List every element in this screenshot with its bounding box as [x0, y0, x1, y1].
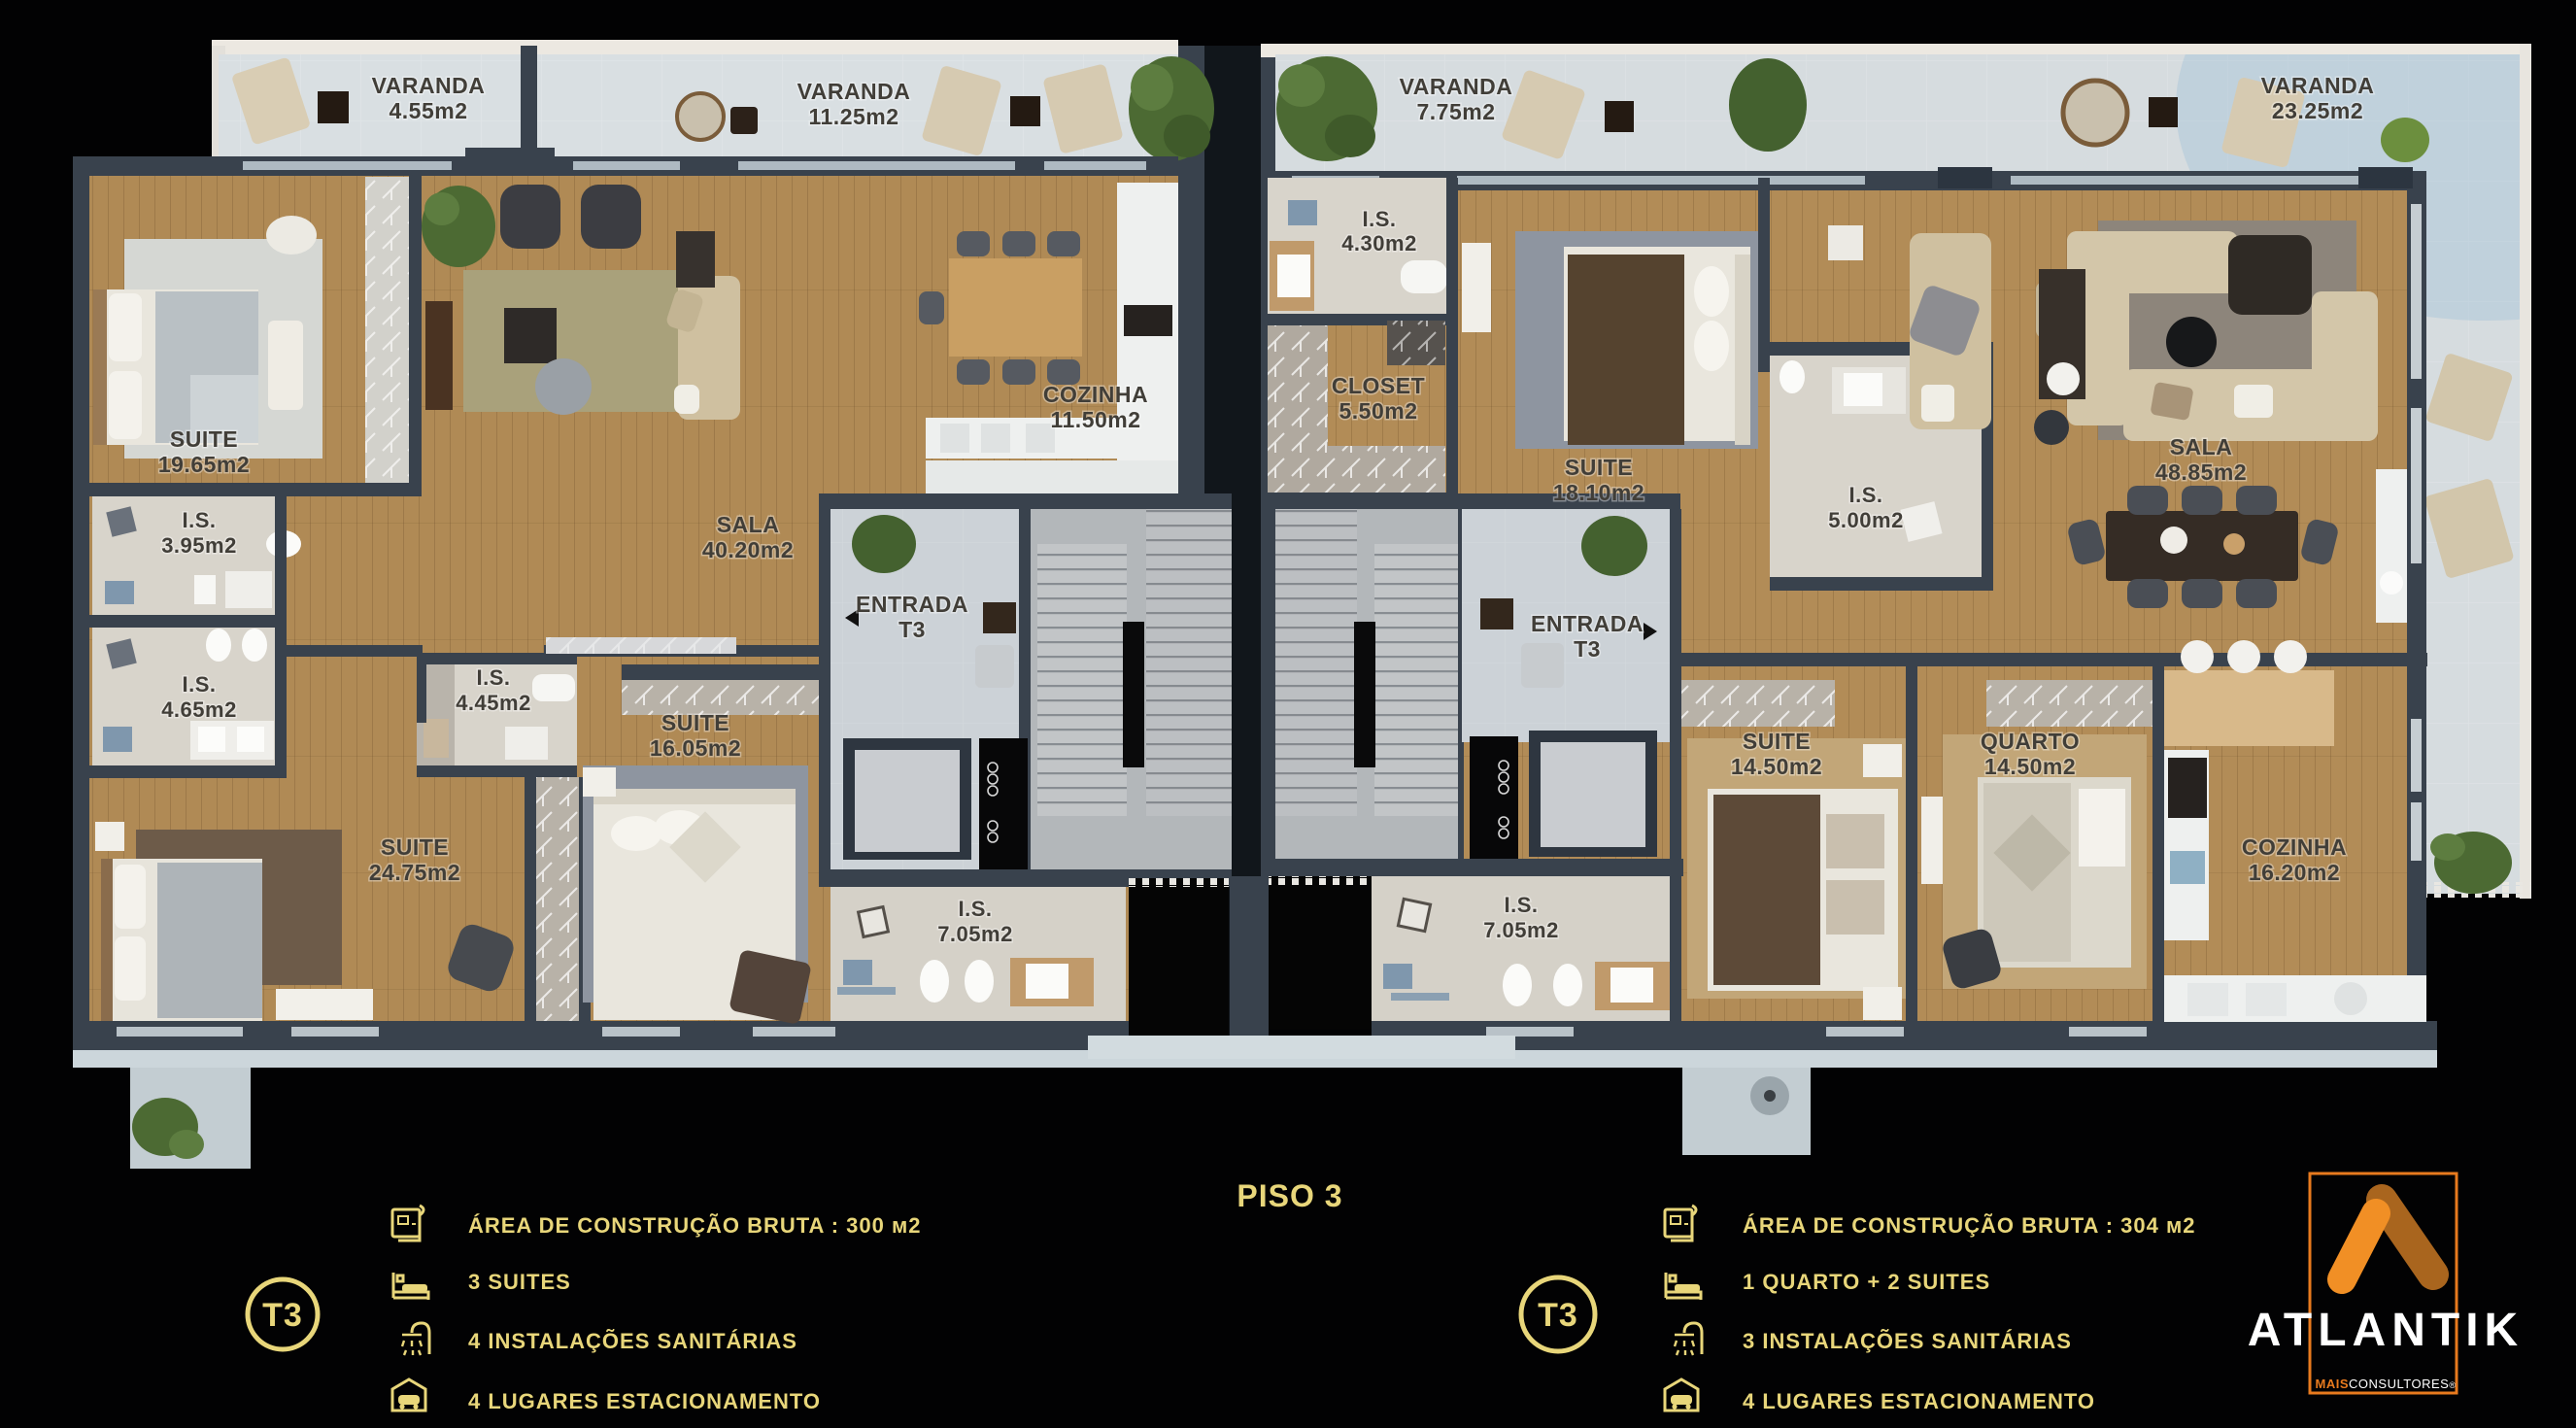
- svg-text:ÁREA DE CONSTRUÇÃO BRUTA : 30: ÁREA DE CONSTRUÇÃO BRUTA : 304 м2: [1743, 1213, 2196, 1238]
- svg-text:I.S.: I.S.: [1848, 483, 1882, 507]
- svg-text:11.50m2: 11.50m2: [1050, 407, 1140, 432]
- svg-text:I.S.: I.S.: [1362, 207, 1396, 231]
- svg-text:16.20m2: 16.20m2: [2249, 860, 2340, 885]
- svg-text:16.05m2: 16.05m2: [650, 735, 741, 761]
- svg-text:5.00m2: 5.00m2: [1828, 508, 1904, 532]
- svg-text:I.S.: I.S.: [182, 508, 216, 532]
- svg-text:ENTRADA: ENTRADA: [1531, 611, 1644, 636]
- svg-text:7.05m2: 7.05m2: [937, 922, 1013, 946]
- svg-text:23.25m2: 23.25m2: [2272, 98, 2363, 123]
- svg-text:4 LUGARES ESTACIONAMENTO: 4 LUGARES ESTACIONAMENTO: [468, 1389, 821, 1413]
- svg-text:14.50m2: 14.50m2: [1731, 754, 1822, 779]
- svg-text:7.75m2: 7.75m2: [1416, 99, 1495, 124]
- svg-text:3 INSTALAÇÕES SANITÁRIAS: 3 INSTALAÇÕES SANITÁRIAS: [1743, 1329, 2072, 1353]
- svg-text:ATLANTIK: ATLANTIK: [2248, 1305, 2524, 1356]
- svg-text:I.S.: I.S.: [476, 665, 510, 690]
- svg-text:SUITE: SUITE: [381, 834, 449, 860]
- svg-text:SALA: SALA: [717, 512, 780, 537]
- svg-text:T3: T3: [898, 617, 926, 642]
- svg-text:MAISCONSULTORES®: MAISCONSULTORES®: [2316, 1377, 2457, 1391]
- svg-text:4.30m2: 4.30m2: [1341, 231, 1417, 255]
- svg-text:CLOSET: CLOSET: [1332, 373, 1425, 398]
- svg-text:48.85m2: 48.85m2: [2155, 459, 2247, 485]
- svg-text:COZINHA: COZINHA: [1043, 382, 1148, 407]
- svg-text:T3: T3: [1538, 1297, 1578, 1334]
- svg-text:PISO 3: PISO 3: [1237, 1178, 1342, 1213]
- svg-text:7.05m2: 7.05m2: [1483, 918, 1559, 942]
- svg-text:I.S.: I.S.: [1504, 893, 1538, 917]
- svg-text:40.20m2: 40.20m2: [702, 537, 794, 562]
- svg-text:SUITE: SUITE: [170, 426, 238, 452]
- svg-text:14.50m2: 14.50m2: [1984, 754, 2076, 779]
- svg-text:I.S.: I.S.: [958, 897, 992, 921]
- svg-text:19.65m2: 19.65m2: [158, 452, 250, 477]
- svg-text:11.25m2: 11.25m2: [808, 104, 898, 129]
- svg-text:VARANDA: VARANDA: [2261, 73, 2375, 98]
- svg-text:QUARTO: QUARTO: [1981, 729, 2080, 754]
- svg-text:3.95m2: 3.95m2: [161, 533, 237, 558]
- svg-text:ENTRADA: ENTRADA: [856, 592, 968, 617]
- svg-text:I.S.: I.S.: [182, 672, 216, 697]
- svg-text:SUITE: SUITE: [1565, 455, 1633, 480]
- svg-text:COZINHA: COZINHA: [2242, 834, 2347, 860]
- svg-text:VARANDA: VARANDA: [372, 73, 486, 98]
- svg-text:5.50m2: 5.50m2: [1339, 398, 1417, 424]
- svg-text:T3: T3: [1574, 636, 1601, 662]
- svg-text:4 LUGARES ESTACIONAMENTO: 4 LUGARES ESTACIONAMENTO: [1743, 1389, 2095, 1413]
- svg-text:ÁREA DE CONSTRUÇÃO BRUTA : 30: ÁREA DE CONSTRUÇÃO BRUTA : 300 м2: [468, 1213, 922, 1238]
- svg-text:3 SUITES: 3 SUITES: [468, 1270, 571, 1294]
- svg-text:4 INSTALAÇÕES SANITÁRIAS: 4 INSTALAÇÕES SANITÁRIAS: [468, 1329, 797, 1353]
- svg-text:T3: T3: [262, 1297, 303, 1334]
- svg-text:SALA: SALA: [2170, 434, 2233, 459]
- svg-text:SUITE: SUITE: [1743, 729, 1811, 754]
- svg-text:VARANDA: VARANDA: [797, 79, 911, 104]
- svg-text:SUITE: SUITE: [661, 710, 729, 735]
- svg-text:4.45m2: 4.45m2: [456, 691, 531, 715]
- svg-text:4.55m2: 4.55m2: [389, 98, 467, 123]
- svg-text:4.65m2: 4.65m2: [161, 697, 237, 722]
- svg-text:18.10m2: 18.10m2: [1553, 480, 1644, 505]
- svg-text:24.75m2: 24.75m2: [369, 860, 460, 885]
- svg-text:VARANDA: VARANDA: [1400, 74, 1513, 99]
- svg-text:1 QUARTO + 2 SUITES: 1 QUARTO + 2 SUITES: [1743, 1270, 1990, 1294]
